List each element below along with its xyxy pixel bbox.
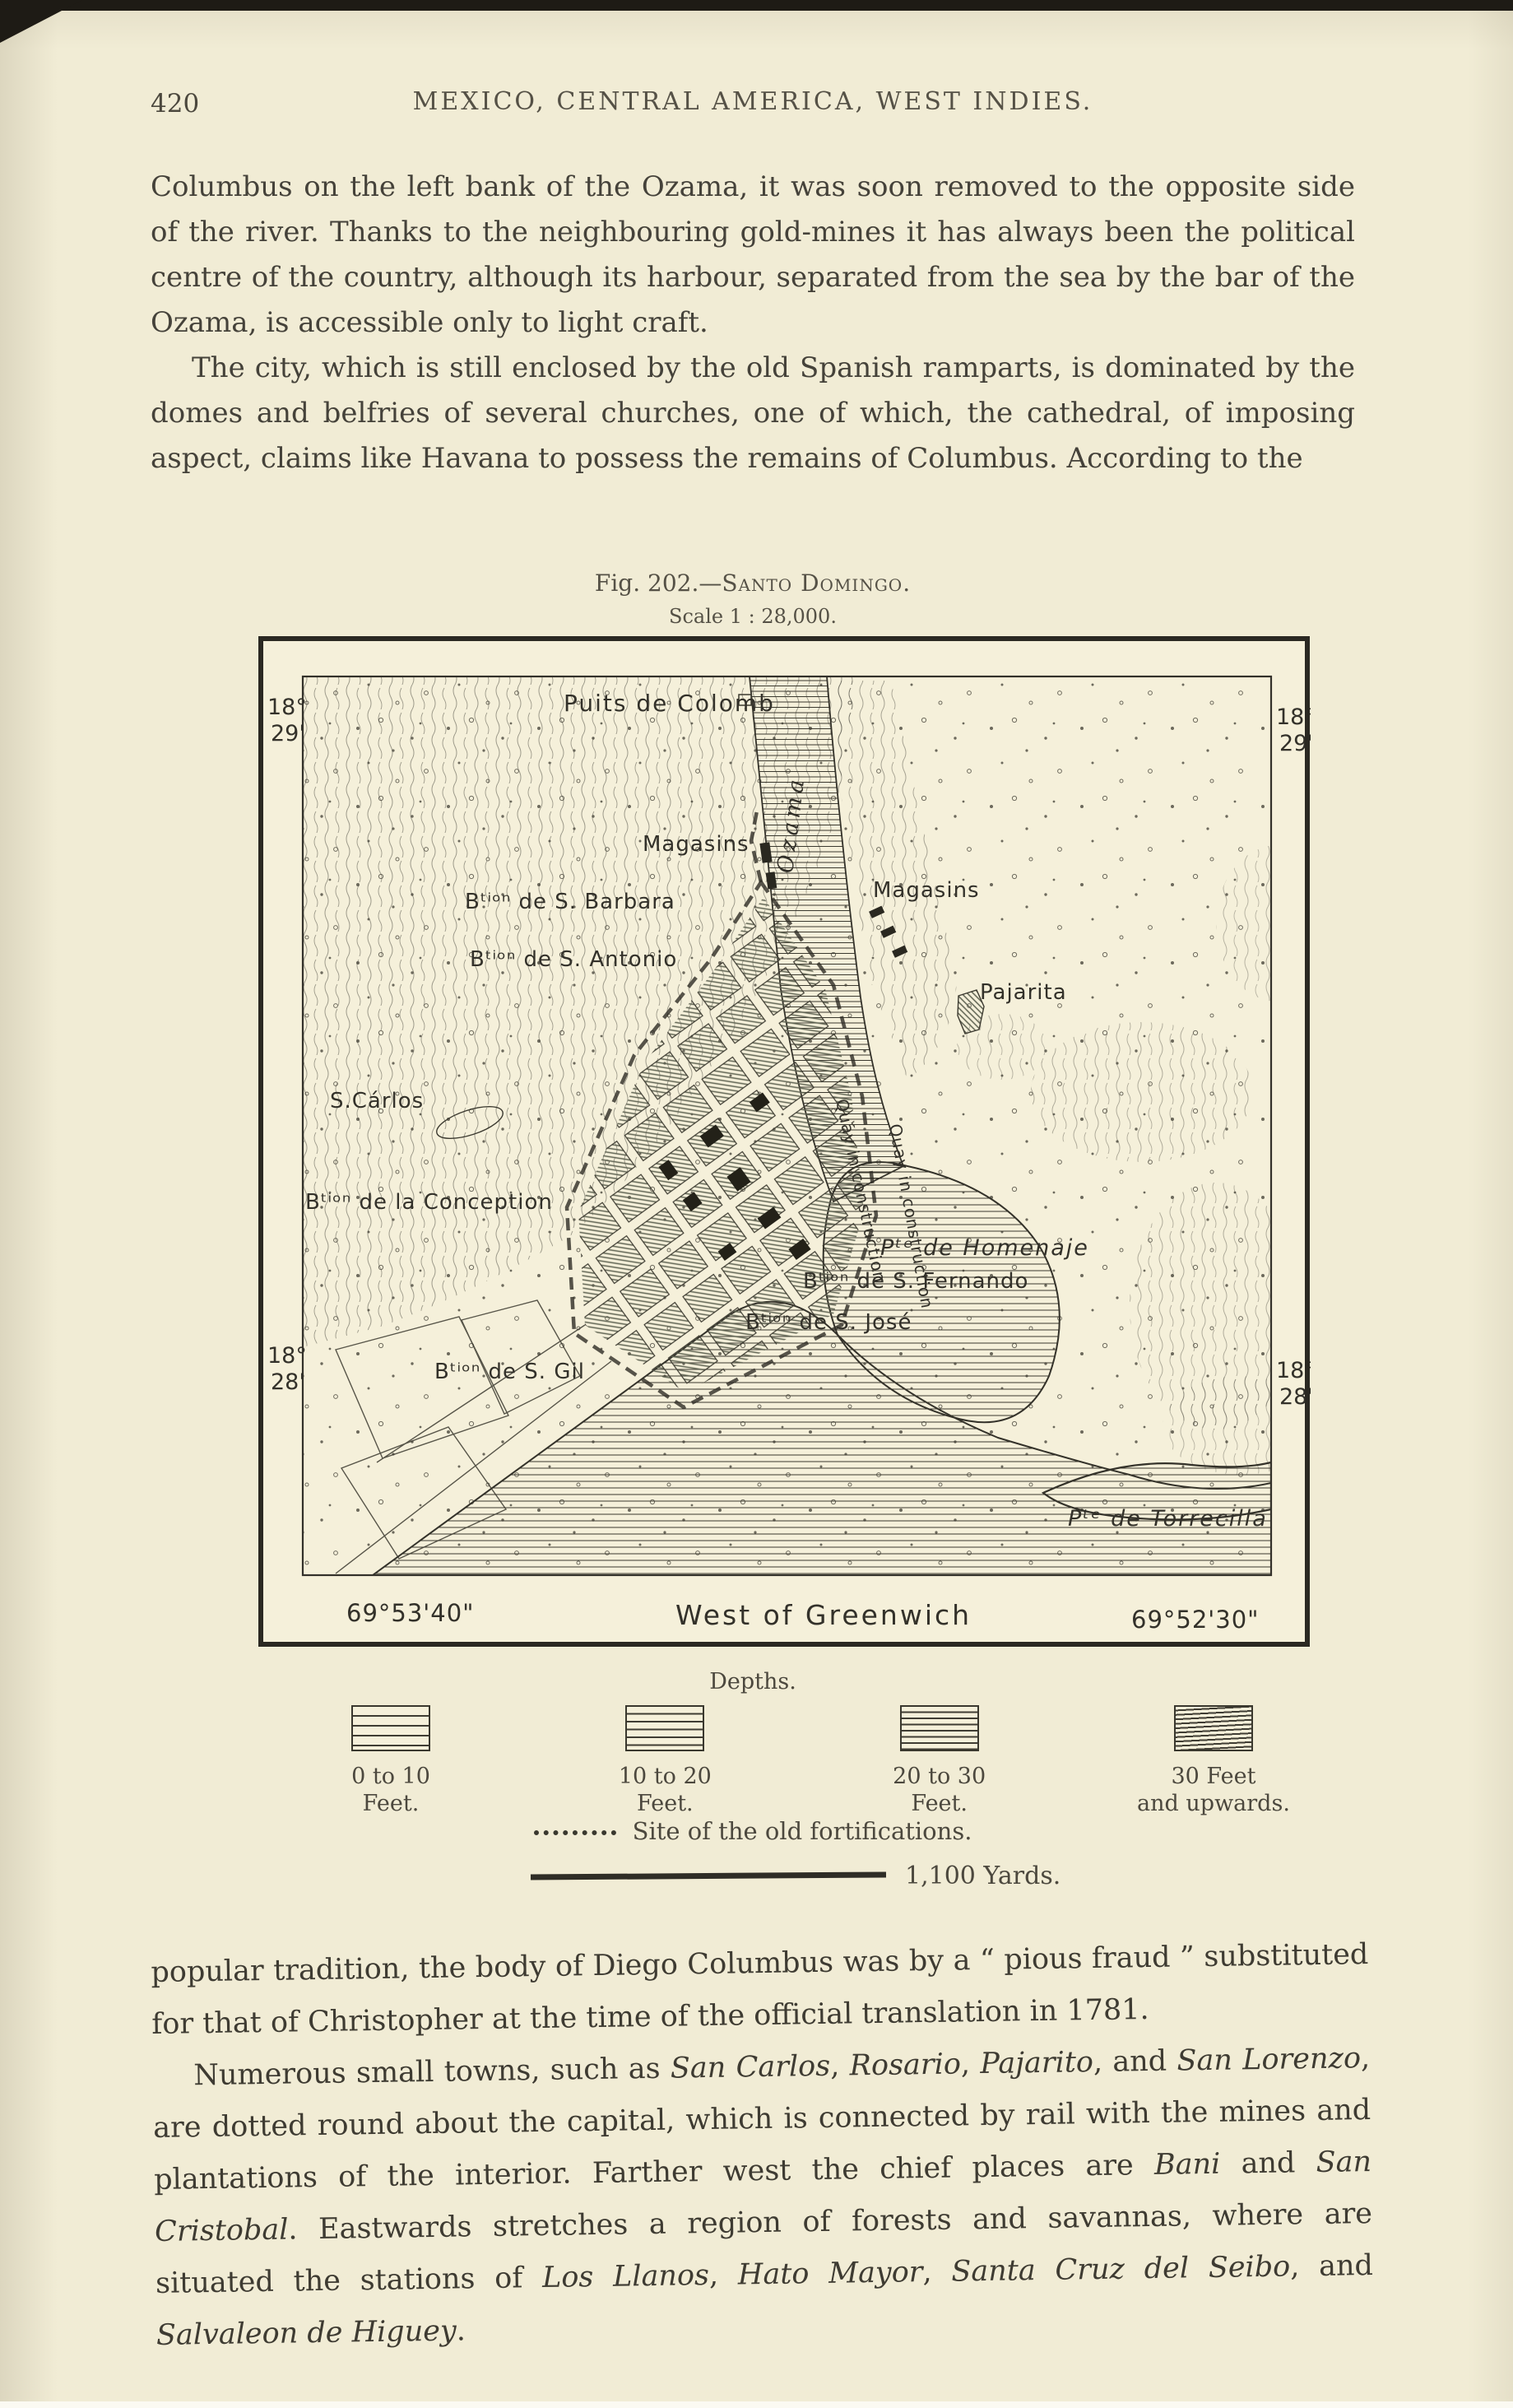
depth-swatch-20-30 [900,1705,979,1751]
map-label-bastion-barbara: Bᵗⁱᵒⁿ de S. Barbara [465,890,675,914]
paragraph-tradition: popular tradition, the body of Diego Col… [151,1929,1370,2051]
top-paragraphs: Columbus on the left bank of the Ozama, … [151,165,1355,481]
map-label-bastion-gil: Bᵗⁱᵒⁿ de S. Gil [434,1360,585,1384]
scan-edge-top [0,0,1513,11]
map-label-puits-de-colomb: Puits de Colomb [564,690,775,717]
legend-label: 0 to 10 Feet. [351,1763,430,1817]
map-label-bastion-conception: Bᵗⁱᵒⁿ de la Conception [305,1190,553,1215]
book-page: 420 MEXICO, CENTRAL AMERICA, WEST INDIES… [0,0,1513,2408]
legend-item-depth-3: 20 to 30 Feet. [845,1705,1034,1817]
map-label-bastion-jose: Bᵗⁱᵒⁿ de S. José [745,1310,912,1335]
scale-bar-label: 1,100 Yards. [905,1862,1060,1890]
map-label-magasins-west: Magasins [643,832,750,857]
map-content [303,676,1311,1575]
map-label-magasins-east: Magasins [873,878,980,903]
depth-legend: 0 to 10 Feet. 10 to 20 Feet. 20 to 30 Fe… [296,1705,1308,1817]
depth-swatch-0-10 [351,1705,430,1751]
longitude-west-value: 69°53'40" [346,1599,475,1627]
legend-title: Depths. [151,1669,1355,1694]
santo-domingo-map: Puits de Colomb Ozama Magasins Magasins … [258,635,1311,1648]
terrain-tuft [1031,1022,1253,1162]
legend-label: 20 to 30 Feet. [893,1763,986,1817]
map-label-bastion-antonio: Bᵗⁱᵒⁿ de S. Antonio [470,947,677,972]
lat-top-left-min: 29' [271,721,305,746]
scale-bar-row: 1,100 Yards. [0,1862,1513,1894]
legend-label: 10 to 20 Feet. [619,1763,712,1817]
depth-swatch-10-20 [625,1705,704,1751]
figure-caption: Fig. 202.—Santo Domingo. Scale 1 : 28,00… [151,569,1355,628]
dotted-line-symbol [534,1830,616,1835]
figure-number: Fig. 202.— [595,569,722,597]
legend-item-depth-2: 10 to 20 Feet. [570,1705,759,1817]
legend-item-depth-4: 30 Feet and upwards. [1119,1705,1308,1817]
map-label-san-carlos: S.Cárlos [330,1089,424,1113]
map-label-pajarita: Pajarita [980,980,1067,1005]
bottom-paragraphs: popular tradition, the body of Diego Col… [151,1929,1374,2362]
scan-edge-bottom [0,2401,1513,2408]
longitude-east-value: 69°52'30" [1131,1606,1260,1634]
page-header: 420 MEXICO, CENTRAL AMERICA, WEST INDIES… [151,87,1355,128]
lat-bottom-left-min: 28' [271,1369,305,1395]
scale-bar [531,1871,886,1880]
figure-title: Fig. 202.—Santo Domingo. [151,569,1355,597]
running-title: MEXICO, CENTRAL AMERICA, WEST INDIES. [151,87,1355,116]
paragraph-towns: Numerous small towns, such as San Carlos… [152,2033,1374,2362]
fortifications-note: Site of the old fortifications. [151,1817,1355,1845]
map-figure: Puits de Colomb Ozama Magasins Magasins … [258,635,1311,1648]
paragraph-columbus: Columbus on the left bank of the Ozama, … [151,165,1355,346]
figure-name: Santo Domingo. [722,569,911,597]
figure-scale-note: Scale 1 : 28,000. [151,605,1355,628]
lat-top-left-deg: 18° [267,695,307,720]
legend-label: 30 Feet and upwards. [1137,1763,1290,1817]
lat-bottom-left-deg: 18° [267,1343,307,1369]
paragraph-city: The city, which is still enclosed by the… [151,346,1355,481]
depth-swatch-30-plus [1174,1705,1253,1751]
map-label-pte-torrecilla: Pᵗᵉ de Torrecilla [1068,1506,1268,1532]
fortifications-note-text: Site of the old fortifications. [633,1817,972,1845]
scan-corner-mark [0,0,82,43]
longitude-meridian-note: West of Greenwich [675,1599,972,1631]
legend-item-depth-1: 0 to 10 Feet. [296,1705,485,1817]
